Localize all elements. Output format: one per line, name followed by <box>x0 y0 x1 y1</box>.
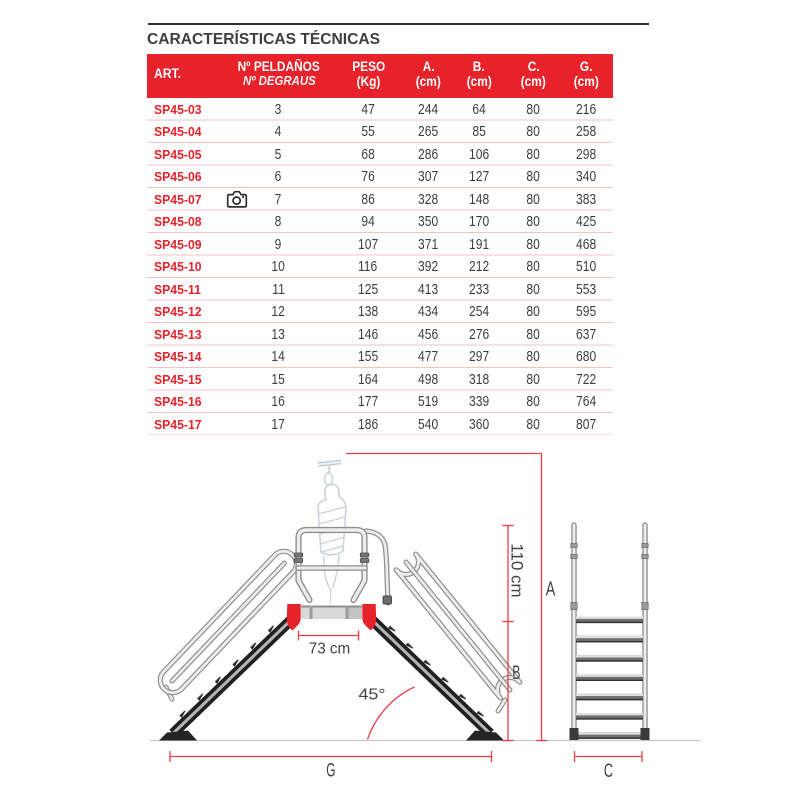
svg-text:B: B <box>512 663 520 684</box>
svg-text:73 cm: 73 cm <box>309 640 351 657</box>
svg-text:110 cm: 110 cm <box>508 544 527 598</box>
svg-text:A: A <box>546 579 556 601</box>
svg-text:45°: 45° <box>359 686 386 703</box>
svg-text:C: C <box>604 761 613 782</box>
svg-text:G: G <box>326 760 335 781</box>
